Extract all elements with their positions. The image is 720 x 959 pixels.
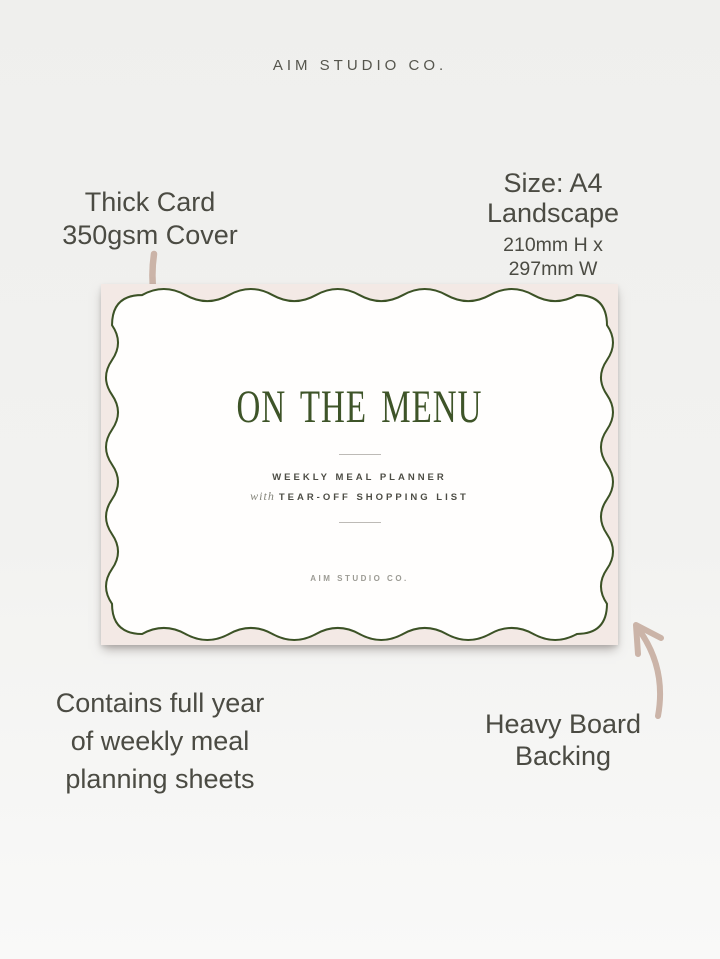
annotation-backing: Heavy Board Backing bbox=[485, 708, 641, 772]
wavy-border bbox=[101, 284, 618, 645]
card-tagline-prefix: with bbox=[250, 489, 275, 503]
planner-cover-card: ON THE MENU WEEKLY MEAL PLANNER withTEAR… bbox=[101, 284, 618, 645]
annotation-contents-line2: of weekly meal bbox=[56, 722, 265, 760]
annotation-material: Thick Card 350gsm Cover bbox=[62, 186, 238, 252]
card-tagline-text: TEAR-OFF SHOPPING LIST bbox=[279, 492, 469, 503]
annotation-backing-line2: Backing bbox=[485, 740, 641, 772]
annotation-size-title: Size: A4 Landscape bbox=[470, 168, 637, 228]
card-tagline-line2: withTEAR-OFF SHOPPING LIST bbox=[101, 489, 618, 504]
annotation-contents-line1: Contains full year bbox=[56, 684, 265, 722]
annotation-contents: Contains full year of weekly meal planni… bbox=[56, 684, 265, 798]
brand-header: AIM STUDIO CO. bbox=[0, 57, 720, 74]
curved-arrow-up-icon bbox=[620, 612, 670, 720]
card-title: ON THE MENU bbox=[101, 380, 618, 437]
card-brand-footer: AIM STUDIO CO. bbox=[101, 574, 618, 583]
annotation-contents-line3: planning sheets bbox=[56, 760, 265, 798]
annotation-material-line2: 350gsm Cover bbox=[62, 219, 238, 252]
divider-line bbox=[339, 454, 381, 455]
arrow-shaft bbox=[637, 627, 660, 716]
annotation-size: Size: A4 Landscape 210mm H x 297mm W bbox=[470, 168, 637, 281]
annotation-size-dimensions: 210mm H x 297mm W bbox=[470, 233, 637, 281]
annotation-backing-line1: Heavy Board bbox=[485, 708, 641, 740]
card-tagline-line1: WEEKLY MEAL PLANNER bbox=[101, 472, 618, 483]
divider-line bbox=[339, 522, 381, 523]
annotation-material-line1: Thick Card bbox=[62, 186, 238, 219]
wavy-border-path bbox=[106, 289, 613, 640]
product-mockup-page: AIM STUDIO CO. Thick Card 350gsm Cover S… bbox=[0, 0, 720, 959]
